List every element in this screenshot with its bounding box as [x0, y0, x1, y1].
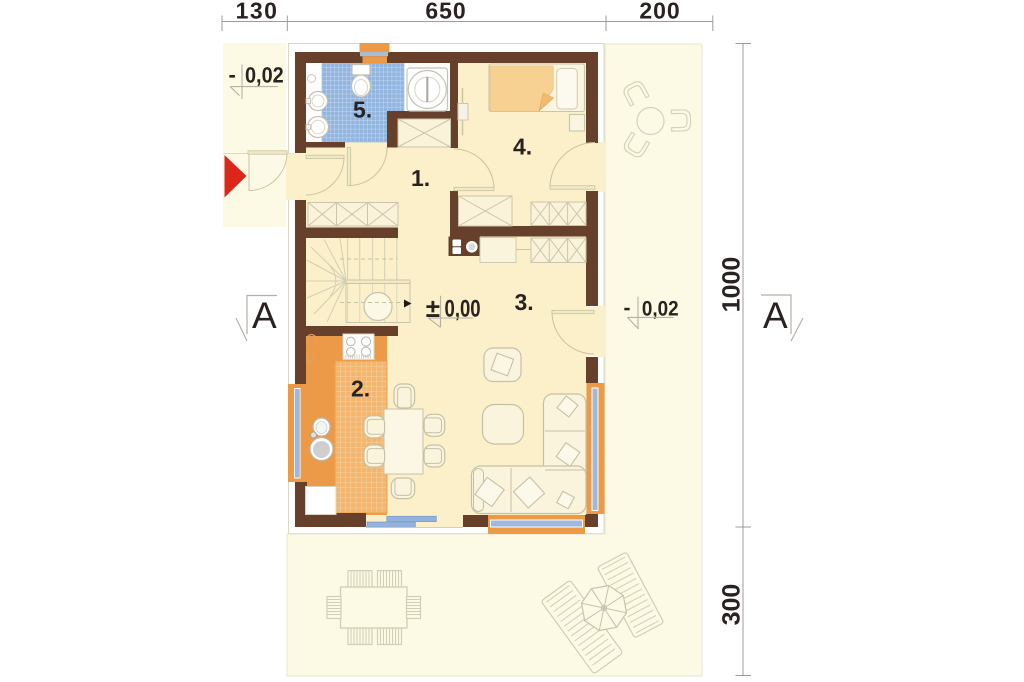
svg-text:1000: 1000 [717, 257, 745, 313]
svg-text:650: 650 [425, 0, 466, 24]
svg-text:5.: 5. [353, 97, 372, 123]
svg-text:1.: 1. [411, 165, 430, 191]
svg-text:2.: 2. [351, 376, 370, 402]
svg-text:200: 200 [639, 0, 680, 24]
svg-text:A: A [763, 295, 788, 336]
svg-text:4.: 4. [513, 134, 532, 160]
svg-text:130: 130 [236, 0, 279, 24]
svg-text:3.: 3. [515, 289, 534, 315]
svg-text:A: A [252, 295, 277, 336]
svg-text:-: - [624, 297, 631, 320]
svg-text:-: - [229, 62, 236, 87]
svg-text:300: 300 [718, 584, 746, 626]
svg-text:0,02: 0,02 [245, 63, 284, 88]
